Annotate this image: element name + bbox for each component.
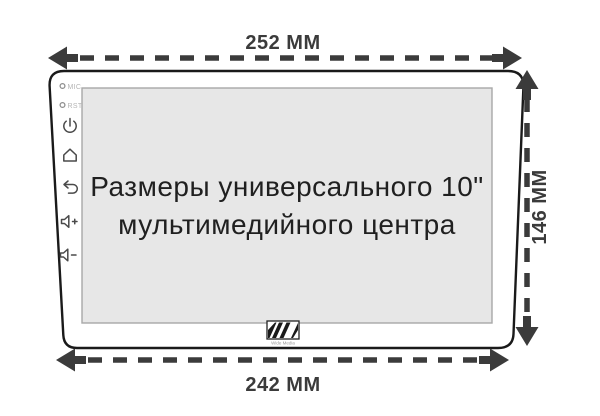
dimension-diagram: 252 ММ Размеры универсального 10" мульти… <box>0 0 600 416</box>
bottom-width-dimension: 242 ММ <box>56 349 509 397</box>
title-line-1: Размеры универсального 10" <box>90 171 484 202</box>
logo-text: Wide Media <box>271 341 295 346</box>
top-width-label: 252 ММ <box>245 32 320 54</box>
arrow-down-icon <box>516 316 539 346</box>
arrow-right-icon <box>479 349 509 372</box>
arrow-right-icon <box>492 47 522 70</box>
mic-label: MIC <box>68 84 82 91</box>
rst-label: RST <box>68 103 83 110</box>
head-unit-body: Размеры универсального 10" мультимедийно… <box>50 71 524 348</box>
arrow-left-icon <box>56 349 86 372</box>
diagram-svg: 252 ММ Размеры универсального 10" мульти… <box>0 0 600 416</box>
bottom-width-label: 242 ММ <box>245 374 320 396</box>
screen <box>82 88 492 323</box>
arrow-left-icon <box>48 47 78 70</box>
title-line-2: мультимедийного центра <box>118 209 456 240</box>
height-label: 146 ММ <box>529 169 551 244</box>
top-width-dimension: 252 ММ <box>48 32 522 70</box>
brand-logo: Wide Media <box>267 321 299 346</box>
